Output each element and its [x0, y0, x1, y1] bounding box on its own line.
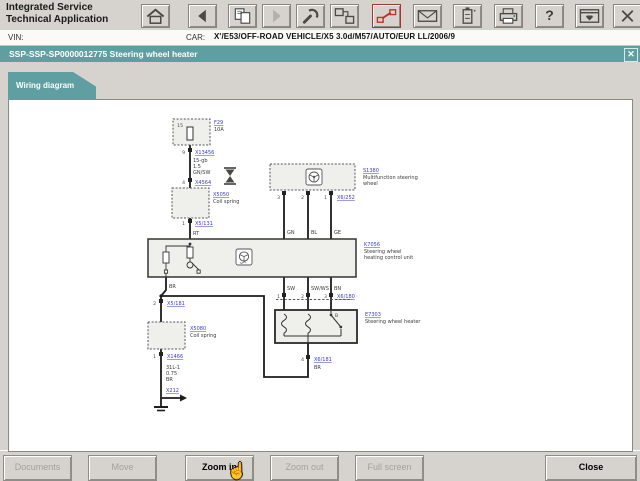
fuse-id-link[interactable]: F29 — [214, 120, 223, 126]
help-button[interactable]: ? — [535, 4, 564, 28]
vehicle-info-bar: VIN: CAR: X'/E53/OFF-ROAD VEHICLE/X5 3.0… — [0, 30, 640, 46]
cursor-hand-icon: ☝ — [227, 461, 247, 481]
svg-text:10A: 10A — [214, 127, 224, 133]
svg-text:BR: BR — [166, 377, 173, 383]
svg-text:Steering wheel heater: Steering wheel heater — [365, 319, 421, 325]
connector-link[interactable]: X5/131 — [195, 221, 213, 227]
service-plan-button[interactable] — [296, 4, 325, 28]
svg-text:BN: BN — [334, 286, 341, 292]
control-unit-link[interactable]: K7056 — [364, 242, 380, 248]
documents-transfer-button[interactable] — [228, 4, 257, 28]
app-title: Integrated ServiceTechnical Application — [6, 2, 108, 26]
steering-wheel-icon — [306, 169, 322, 185]
svg-text:15: 15 — [177, 123, 183, 129]
svg-text:B: B — [335, 313, 338, 319]
svg-text:BL: BL — [311, 230, 317, 236]
mfsw-link[interactable]: S1380 — [363, 168, 379, 174]
back-button[interactable] — [188, 4, 217, 28]
svg-text:GE: GE — [334, 230, 341, 236]
svg-text:Coil spring: Coil spring — [190, 333, 216, 339]
help-icon: ? — [536, 5, 563, 27]
connector-link[interactable]: X1466 — [167, 354, 183, 360]
ground-arrow-icon — [161, 395, 187, 402]
svg-text:GN: GN — [287, 230, 295, 236]
home-button[interactable] — [141, 4, 170, 28]
vehicle-connection-button[interactable] — [372, 4, 401, 28]
svg-text:2: 2 — [301, 195, 304, 201]
coil-spring-upper-box: X5050 Coil spring 1 X5/131 RT — [172, 188, 239, 237]
close-app-button[interactable] — [613, 4, 640, 28]
car-label: CAR: — [186, 33, 205, 42]
measurement-device-button[interactable] — [330, 4, 359, 28]
control-unit-box: K7056 Steering wheel heating control uni… — [148, 239, 413, 277]
tab-label: Wiring diagram — [16, 81, 74, 90]
coil-spring-upper-link[interactable]: X5050 — [213, 192, 229, 198]
dock-window-button[interactable] — [575, 4, 604, 28]
print-button[interactable] — [494, 4, 523, 28]
heater-link[interactable]: E7303 — [365, 312, 381, 318]
svg-text:9: 9 — [182, 150, 185, 156]
documents-button[interactable]: Documents — [3, 455, 72, 481]
hourglass-icon — [224, 168, 236, 184]
document-title: SSP-SSP-SP0000012775 Steering wheel heat… — [9, 49, 198, 59]
svg-text:heating control unit: heating control unit — [364, 255, 413, 261]
svg-text:4: 4 — [182, 180, 185, 186]
vin-label: VIN: — [8, 33, 24, 42]
car-value: X'/E53/OFF-ROAD VEHICLE/X5 3.0d/M57/AUTO… — [214, 32, 455, 41]
zoom-out-button[interactable]: Zoom out — [270, 455, 339, 481]
svg-text:3: 3 — [277, 195, 280, 201]
app-header: Integrated ServiceTechnical Application — [0, 0, 640, 31]
svg-text:BR: BR — [169, 284, 176, 290]
document-title-bar: SSP-SSP-SP0000012775 Steering wheel heat… — [0, 46, 640, 62]
connector-link[interactable]: X13456 — [195, 150, 214, 156]
svg-text:2: 2 — [153, 301, 156, 307]
tab-wiring-diagram[interactable]: Wiring diagram — [8, 72, 96, 100]
full-screen-button[interactable]: Full screen — [355, 455, 424, 481]
svg-text:1: 1 — [324, 195, 327, 201]
svg-text:Coil spring: Coil spring — [213, 199, 239, 205]
ground-branch: 2 X5/181 X5080 Coil spring 1 X1466 31L-1… — [148, 294, 216, 410]
left-branch-labels: 9 X13456 15-gb 1.5 GN/SW 4 X4564 — [182, 148, 214, 186]
connector-link[interactable]: X4564 — [195, 180, 211, 186]
heated-steering-wheel-icon — [236, 249, 252, 265]
multifunction-steering-wheel-box: S1380 Multifunction steering wheel 3 2 1… — [270, 164, 418, 236]
ground-symbol-icon — [154, 407, 168, 411]
document-close-button[interactable]: ✕ — [624, 48, 638, 62]
move-button[interactable]: Move — [88, 455, 157, 481]
connector-link[interactable]: X6/252 — [337, 195, 355, 201]
ground-point-link[interactable]: X212 — [166, 388, 179, 394]
svg-text:1: 1 — [182, 221, 185, 227]
close-button[interactable]: Close — [545, 455, 637, 481]
fuse-box: 15 F29 10A — [173, 119, 224, 145]
svg-text:SW: SW — [287, 286, 295, 292]
connector-link[interactable]: X5/181 — [167, 301, 185, 307]
svg-text:wheel: wheel — [363, 181, 378, 187]
footer-button-bar: Documents Move Zoom in Zoom out Full scr… — [0, 450, 640, 481]
svg-text:SW/WS: SW/WS — [311, 286, 329, 292]
svg-text:4: 4 — [301, 357, 304, 363]
heater-connector-row: BR SW SW/WS BN 1 2 3 X6/180 — [169, 284, 355, 300]
svg-text:1: 1 — [153, 354, 156, 360]
connector-link[interactable]: X6/181 — [314, 357, 332, 363]
steering-wheel-heater-box: B E7303 Steering wheel heater 4 X6/181 B… — [275, 310, 421, 371]
battery-button[interactable] — [453, 4, 482, 28]
mail-button[interactable] — [413, 4, 442, 28]
svg-text:BR: BR — [314, 365, 321, 371]
svg-text:RT: RT — [193, 231, 200, 237]
forward-button[interactable] — [262, 4, 291, 28]
svg-text:GN/SW: GN/SW — [193, 170, 210, 176]
wiring-diagram: 15 F29 10A 9 X13456 15-gb 1.5 GN/SW 4 X4… — [9, 100, 630, 449]
coil-spring-lower-link[interactable]: X5080 — [190, 326, 206, 332]
